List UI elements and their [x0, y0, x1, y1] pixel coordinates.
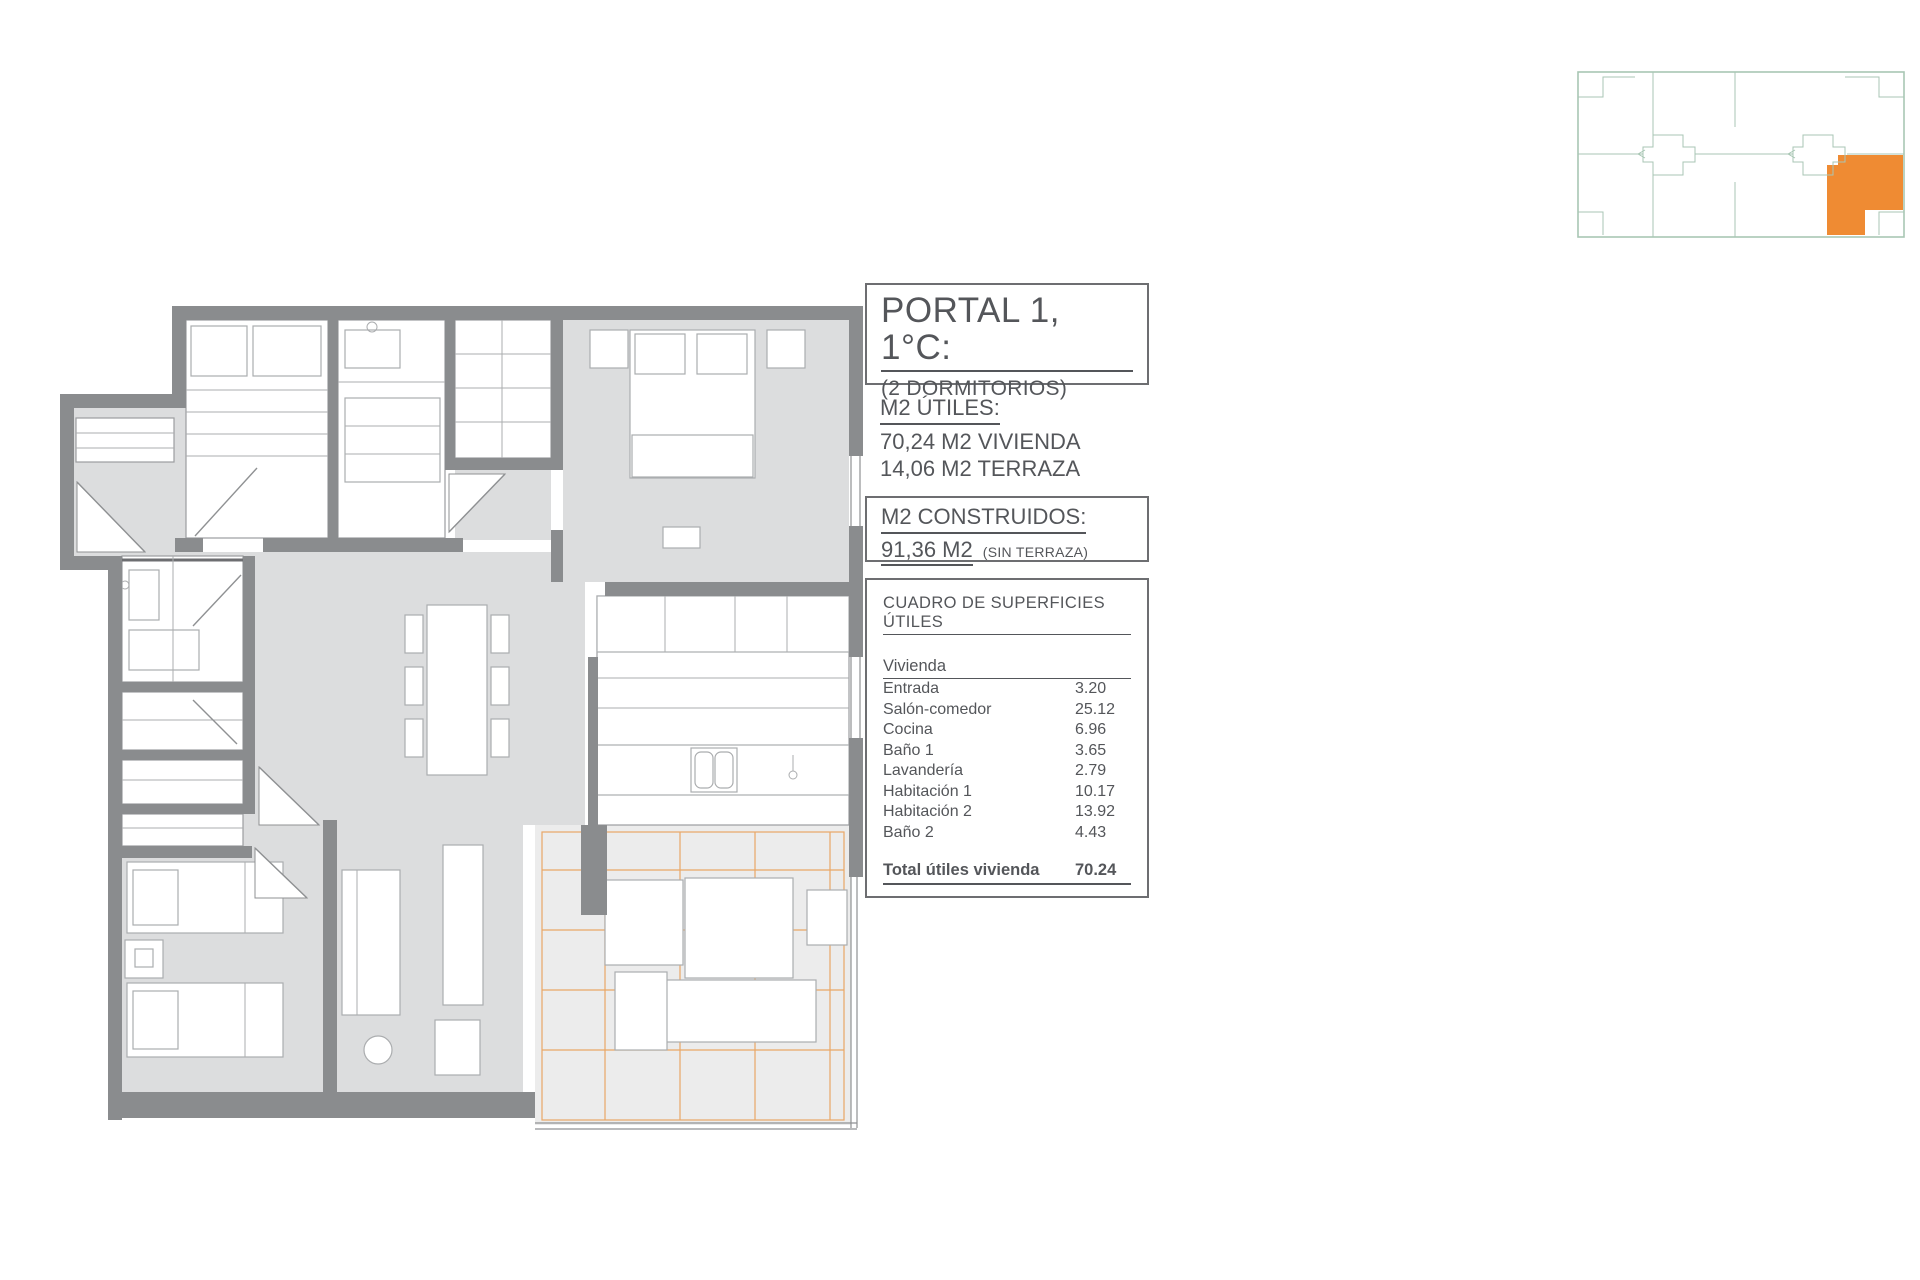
m2-construidos-value: 91,36 M2 — [881, 537, 973, 566]
table-row: Habitación 1 10.17 — [883, 782, 1131, 803]
m2-construidos-box: M2 CONSTRUIDOS: 91,36 M2 (SIN TERRAZA) — [865, 496, 1149, 562]
m2-utiles-heading: M2 ÚTILES: — [880, 395, 1000, 425]
m2-utiles-vivienda: 70,24 M2 VIVIENDA — [880, 429, 1150, 456]
table-row: Baño 2 4.43 — [883, 823, 1131, 844]
table-row: Salón-comedor 25.12 — [883, 700, 1131, 721]
surface-table-heading: CUADRO DE SUPERFICIES ÚTILES — [883, 594, 1131, 635]
room-shelf — [122, 814, 243, 846]
m2-utiles-terraza: 14,06 M2 TERRAZA — [880, 456, 1150, 483]
surface-table-group: Vivienda — [883, 657, 1131, 679]
m2-construidos-note: (SIN TERRAZA) — [983, 544, 1089, 560]
surface-table: CUADRO DE SUPERFICIES ÚTILES Vivienda En… — [865, 578, 1149, 898]
table-row: Entrada 3.20 — [883, 679, 1131, 700]
room-laundry — [122, 692, 243, 750]
entrance-closet — [76, 418, 174, 462]
table-row: Lavandería 2.79 — [883, 761, 1131, 782]
key-plan — [1575, 67, 1907, 242]
room-storage — [122, 760, 243, 804]
room-closet-bed2 — [455, 320, 551, 458]
table-row: Habitación 2 13.92 — [883, 802, 1131, 823]
portal-title: PORTAL 1, 1°C: — [881, 293, 1133, 372]
key-plan-highlight — [1827, 155, 1903, 235]
m2-utiles-block: M2 ÚTILES: 70,24 M2 VIVIENDA 14,06 M2 TE… — [880, 395, 1150, 483]
m2-construidos-heading: M2 CONSTRUIDOS: — [881, 504, 1086, 534]
floor-plan — [45, 230, 865, 1140]
table-total-row: Total útiles vivienda 70.24 — [883, 861, 1131, 885]
table-row: Cocina 6.96 — [883, 720, 1131, 741]
table-row: Baño 1 3.65 — [883, 741, 1131, 762]
title-box: PORTAL 1, 1°C: (2 DORMITORIOS) — [865, 283, 1149, 385]
